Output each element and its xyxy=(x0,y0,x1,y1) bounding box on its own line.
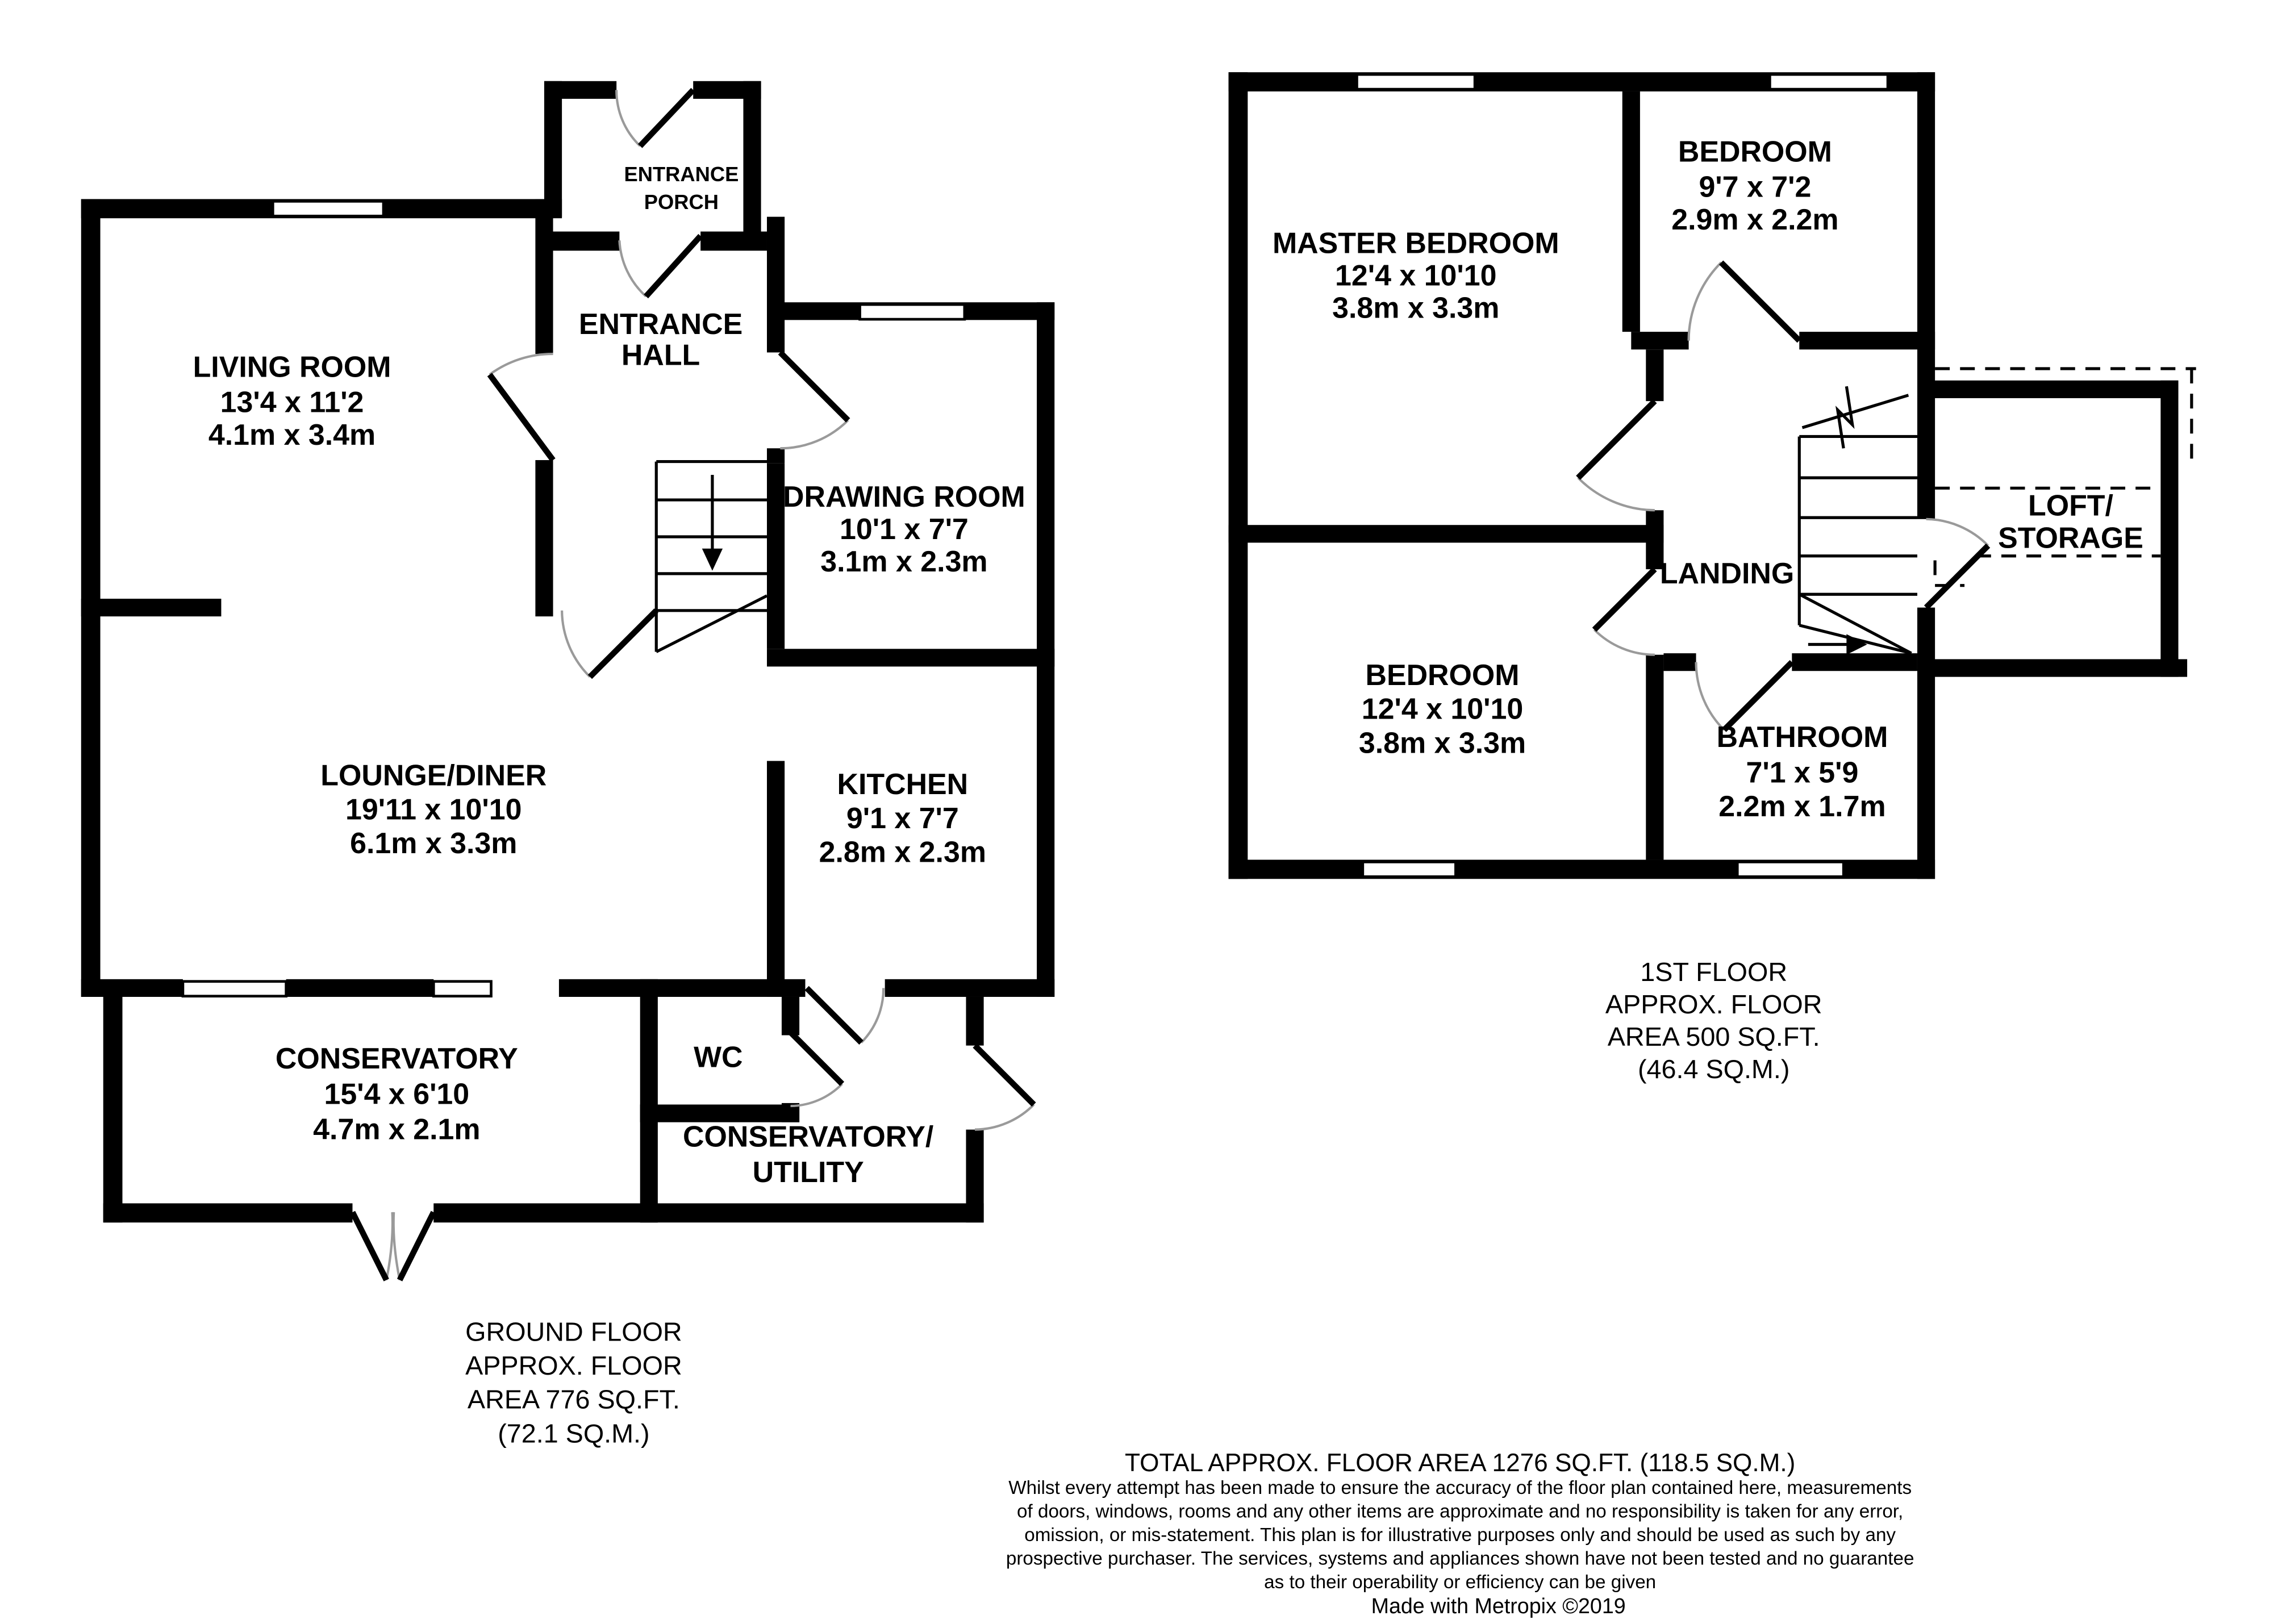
drawing-room-dims-ft: 10'1 x 7'7 xyxy=(840,513,969,546)
bathroom-dims-m: 2.2m x 1.7m xyxy=(1718,790,1885,823)
drawing-room-label: DRAWING ROOM xyxy=(783,481,1025,513)
conservatory-dims-ft: 15'4 x 6'10 xyxy=(324,1078,470,1111)
loft-storage-label-2: STORAGE xyxy=(1998,522,2143,555)
floor-plan-svg: LIVING ROOM 13'4 x 11'2 4.1m x 3.4m ENTR… xyxy=(0,0,2286,1622)
master-bedroom-label: MASTER BEDROOM xyxy=(1273,227,1559,260)
porch-hall-door-leaf xyxy=(646,236,700,296)
ground-floor-caption-2: APPROX. FLOOR xyxy=(465,1351,682,1380)
wall xyxy=(1917,608,1935,879)
bedroom-top-dims-m: 2.9m x 2.2m xyxy=(1671,203,1838,236)
lounge-diner-dims-m: 6.1m x 3.3m xyxy=(350,827,517,860)
ground-floor-walls xyxy=(81,81,1054,1222)
first-floor-caption-4: (46.4 SQ.M.) xyxy=(1638,1054,1789,1084)
stairs-down-arrowhead xyxy=(702,549,723,571)
bedroom-top-door-leaf xyxy=(1721,262,1800,341)
wall xyxy=(782,997,799,1035)
entrance-porch-label-1: ENTRANCE xyxy=(624,162,739,186)
living-room-label: LIVING ROOM xyxy=(193,350,391,383)
utility-door-arc xyxy=(975,1104,1034,1129)
wall xyxy=(1229,525,1664,542)
wall xyxy=(1917,72,1935,519)
lounge-diner-dims-ft: 19'11 x 10'10 xyxy=(345,793,522,826)
wall xyxy=(1926,381,2179,398)
wall xyxy=(2160,381,2178,677)
window-drawing-room xyxy=(860,304,965,319)
floor-plan-page: LIVING ROOM 13'4 x 11'2 4.1m x 3.4m ENTR… xyxy=(0,0,2286,1622)
wc-door-arc xyxy=(791,1084,842,1106)
wall xyxy=(966,1130,983,1223)
conservatory-label: CONSERVATORY xyxy=(276,1042,518,1075)
window-bathroom xyxy=(1737,862,1843,876)
conservatory-utility-label-2: UTILITY xyxy=(753,1156,864,1189)
bedroom-top-door-arc xyxy=(1689,262,1721,341)
wall xyxy=(966,997,983,1046)
wall xyxy=(743,81,761,235)
stairs-winder xyxy=(656,596,767,652)
wc-door-leaf xyxy=(791,1032,842,1084)
first-floor-stairs xyxy=(1799,386,1917,654)
utility-door-leaf xyxy=(975,1046,1034,1105)
wall xyxy=(1792,653,1917,671)
ground-floor-plan: LIVING ROOM 13'4 x 11'2 4.1m x 3.4m ENTR… xyxy=(81,81,1054,1280)
living-room-door-leaf xyxy=(490,374,553,460)
loft-door-leaf xyxy=(1926,546,1988,608)
wall xyxy=(1646,655,1663,860)
wall xyxy=(103,1203,353,1222)
stairs-top-winder xyxy=(1802,395,1908,428)
ground-floor-caption-4: (72.1 SQ.M.) xyxy=(498,1418,649,1448)
wall xyxy=(640,1104,799,1122)
entrance-porch-label-2: PORCH xyxy=(644,190,719,214)
wall xyxy=(640,979,658,1222)
wall xyxy=(700,232,767,251)
bathroom-door-arc xyxy=(1696,662,1724,730)
window-lounge-left xyxy=(183,982,286,996)
ground-floor-caption-1: GROUND FLOOR xyxy=(465,1317,682,1346)
kitchen-door-arc xyxy=(861,988,883,1042)
wall xyxy=(103,988,123,1222)
living-room-dims-ft: 13'4 x 11'2 xyxy=(220,386,364,419)
bedroom-bottom-door-arc xyxy=(1594,630,1654,655)
bathroom-dims-ft: 7'1 x 5'9 xyxy=(1746,756,1859,789)
conservatory-dims-m: 4.7m x 2.1m xyxy=(313,1113,480,1146)
conservatory-french-door-leaf-left xyxy=(352,1212,386,1280)
wall xyxy=(767,448,785,463)
entrance-hall-label-1: ENTRANCE xyxy=(579,308,742,341)
ground-floor-windows xyxy=(183,201,965,996)
front-door-arc xyxy=(616,90,640,146)
disclaimer-line-4: prospective purchaser. The services, sys… xyxy=(1006,1548,1914,1569)
lounge-diner-label: LOUNGE/DINER xyxy=(320,759,547,792)
wall xyxy=(544,81,562,217)
captions: GROUND FLOOR APPROX. FLOOR AREA 776 SQ.F… xyxy=(465,957,1914,1618)
wall xyxy=(885,979,1055,997)
kitchen-dims-ft: 9'1 x 7'7 xyxy=(846,802,959,835)
kitchen-door-leaf xyxy=(807,988,861,1042)
bedroom-bottom-door-leaf xyxy=(1594,569,1654,629)
wall xyxy=(1622,91,1640,332)
disclaimer-line-2: of doors, windows, rooms and any other i… xyxy=(1017,1501,1903,1522)
wall xyxy=(767,217,785,353)
wall xyxy=(535,460,553,616)
ground-floor-stairs xyxy=(656,462,767,652)
bathroom-label: BATHROOM xyxy=(1717,721,1888,754)
master-bedroom-door-arc xyxy=(1578,478,1655,510)
landing-label: LANDING xyxy=(1660,557,1794,590)
wall xyxy=(1229,72,1248,879)
conservatory-french-door-leaf-right xyxy=(400,1212,434,1280)
wall xyxy=(544,232,619,251)
first-floor-caption-3: AREA 500 SQ.FT. xyxy=(1608,1022,1820,1051)
entrance-hall-label-2: HALL xyxy=(621,339,700,372)
wall xyxy=(1646,349,1663,401)
wall xyxy=(559,979,806,997)
bedroom-bottom-dims-m: 3.8m x 3.3m xyxy=(1359,727,1526,759)
kitchen-label: KITCHEN xyxy=(837,768,968,801)
porch-hall-door-arc xyxy=(619,240,646,297)
wall xyxy=(767,649,1054,666)
bedroom-top-dims-ft: 9'7 x 7'2 xyxy=(1699,171,1811,204)
master-bedroom-door-leaf xyxy=(1578,401,1655,478)
wall xyxy=(1799,332,1935,349)
window-master-bedroom xyxy=(1357,74,1475,89)
total-area-text: TOTAL APPROX. FLOOR AREA 1276 SQ.FT. (11… xyxy=(1125,1449,1795,1477)
window-lounge-right xyxy=(433,982,491,996)
wall xyxy=(81,199,101,997)
drawing-room-door-arc xyxy=(780,420,848,448)
stairs-outline xyxy=(1799,436,1917,625)
window-bedroom-bottom xyxy=(1363,862,1456,876)
wall xyxy=(81,979,183,997)
master-bedroom-dims-m: 3.8m x 3.3m xyxy=(1332,292,1499,325)
stairs-arrowhead xyxy=(1846,634,1867,654)
wall xyxy=(1926,659,2188,677)
wall xyxy=(1631,332,1688,349)
ground-floor-caption-3: AREA 776 SQ.FT. xyxy=(468,1385,680,1414)
conservatory-french-door-arc-left xyxy=(386,1212,393,1280)
living-room-dims-m: 4.1m x 3.4m xyxy=(208,419,376,452)
wall xyxy=(535,199,553,354)
master-bedroom-dims-ft: 12'4 x 10'10 xyxy=(1335,259,1496,292)
conservatory-utility-label-1: CONSERVATORY/ xyxy=(683,1121,933,1154)
bedroom-bottom-label: BEDROOM xyxy=(1365,659,1519,692)
wall xyxy=(767,761,785,997)
first-floor-labels: MASTER BEDROOM 12'4 x 10'10 3.8m x 3.3m … xyxy=(1273,135,2143,823)
metropix-credit: Made with Metropix ©2019 xyxy=(1371,1594,1626,1618)
wall xyxy=(544,81,616,99)
wc-label: WC xyxy=(694,1041,742,1074)
drawing-room-door-leaf xyxy=(780,352,848,420)
disclaimer-line-1: Whilst every attempt has been made to en… xyxy=(1008,1477,1912,1498)
kitchen-dims-m: 2.8m x 2.3m xyxy=(819,836,986,869)
wall xyxy=(640,1203,984,1222)
loft-storage-label-1: LOFT/ xyxy=(2028,489,2113,522)
first-floor-caption-2: APPROX. FLOOR xyxy=(1605,990,1822,1019)
wall xyxy=(81,599,222,616)
living-room-door-arc xyxy=(490,354,553,374)
hall-lounge-door-leaf xyxy=(590,611,656,677)
drawing-room-dims-m: 3.1m x 2.3m xyxy=(820,545,987,578)
loft-door-arc xyxy=(1926,519,1988,546)
first-floor-caption-1: 1ST FLOOR xyxy=(1640,957,1787,987)
disclaimer-line-5: as to their operability or efficiency ca… xyxy=(1264,1572,1656,1593)
bedroom-bottom-dims-ft: 12'4 x 10'10 xyxy=(1362,693,1523,726)
hall-lounge-door-arc xyxy=(562,611,590,677)
wall xyxy=(767,463,785,649)
window-living-room xyxy=(273,201,383,216)
bathroom-door-leaf xyxy=(1724,662,1792,730)
stairs-steps xyxy=(1799,478,1917,594)
disclaimer-line-3: omission, or mis-statement. This plan is… xyxy=(1024,1525,1896,1546)
wall xyxy=(1663,653,1696,671)
bedroom-top-label: BEDROOM xyxy=(1678,135,1832,168)
stairs-break-mark xyxy=(1838,386,1853,448)
front-door-leaf xyxy=(640,90,693,146)
window-bedroom-top xyxy=(1770,74,1888,89)
wall xyxy=(433,1203,658,1222)
first-floor-plan: MASTER BEDROOM 12'4 x 10'10 3.8m x 3.3m … xyxy=(1229,72,2196,879)
conservatory-french-door-arc-right xyxy=(394,1212,400,1280)
wall xyxy=(286,979,434,997)
